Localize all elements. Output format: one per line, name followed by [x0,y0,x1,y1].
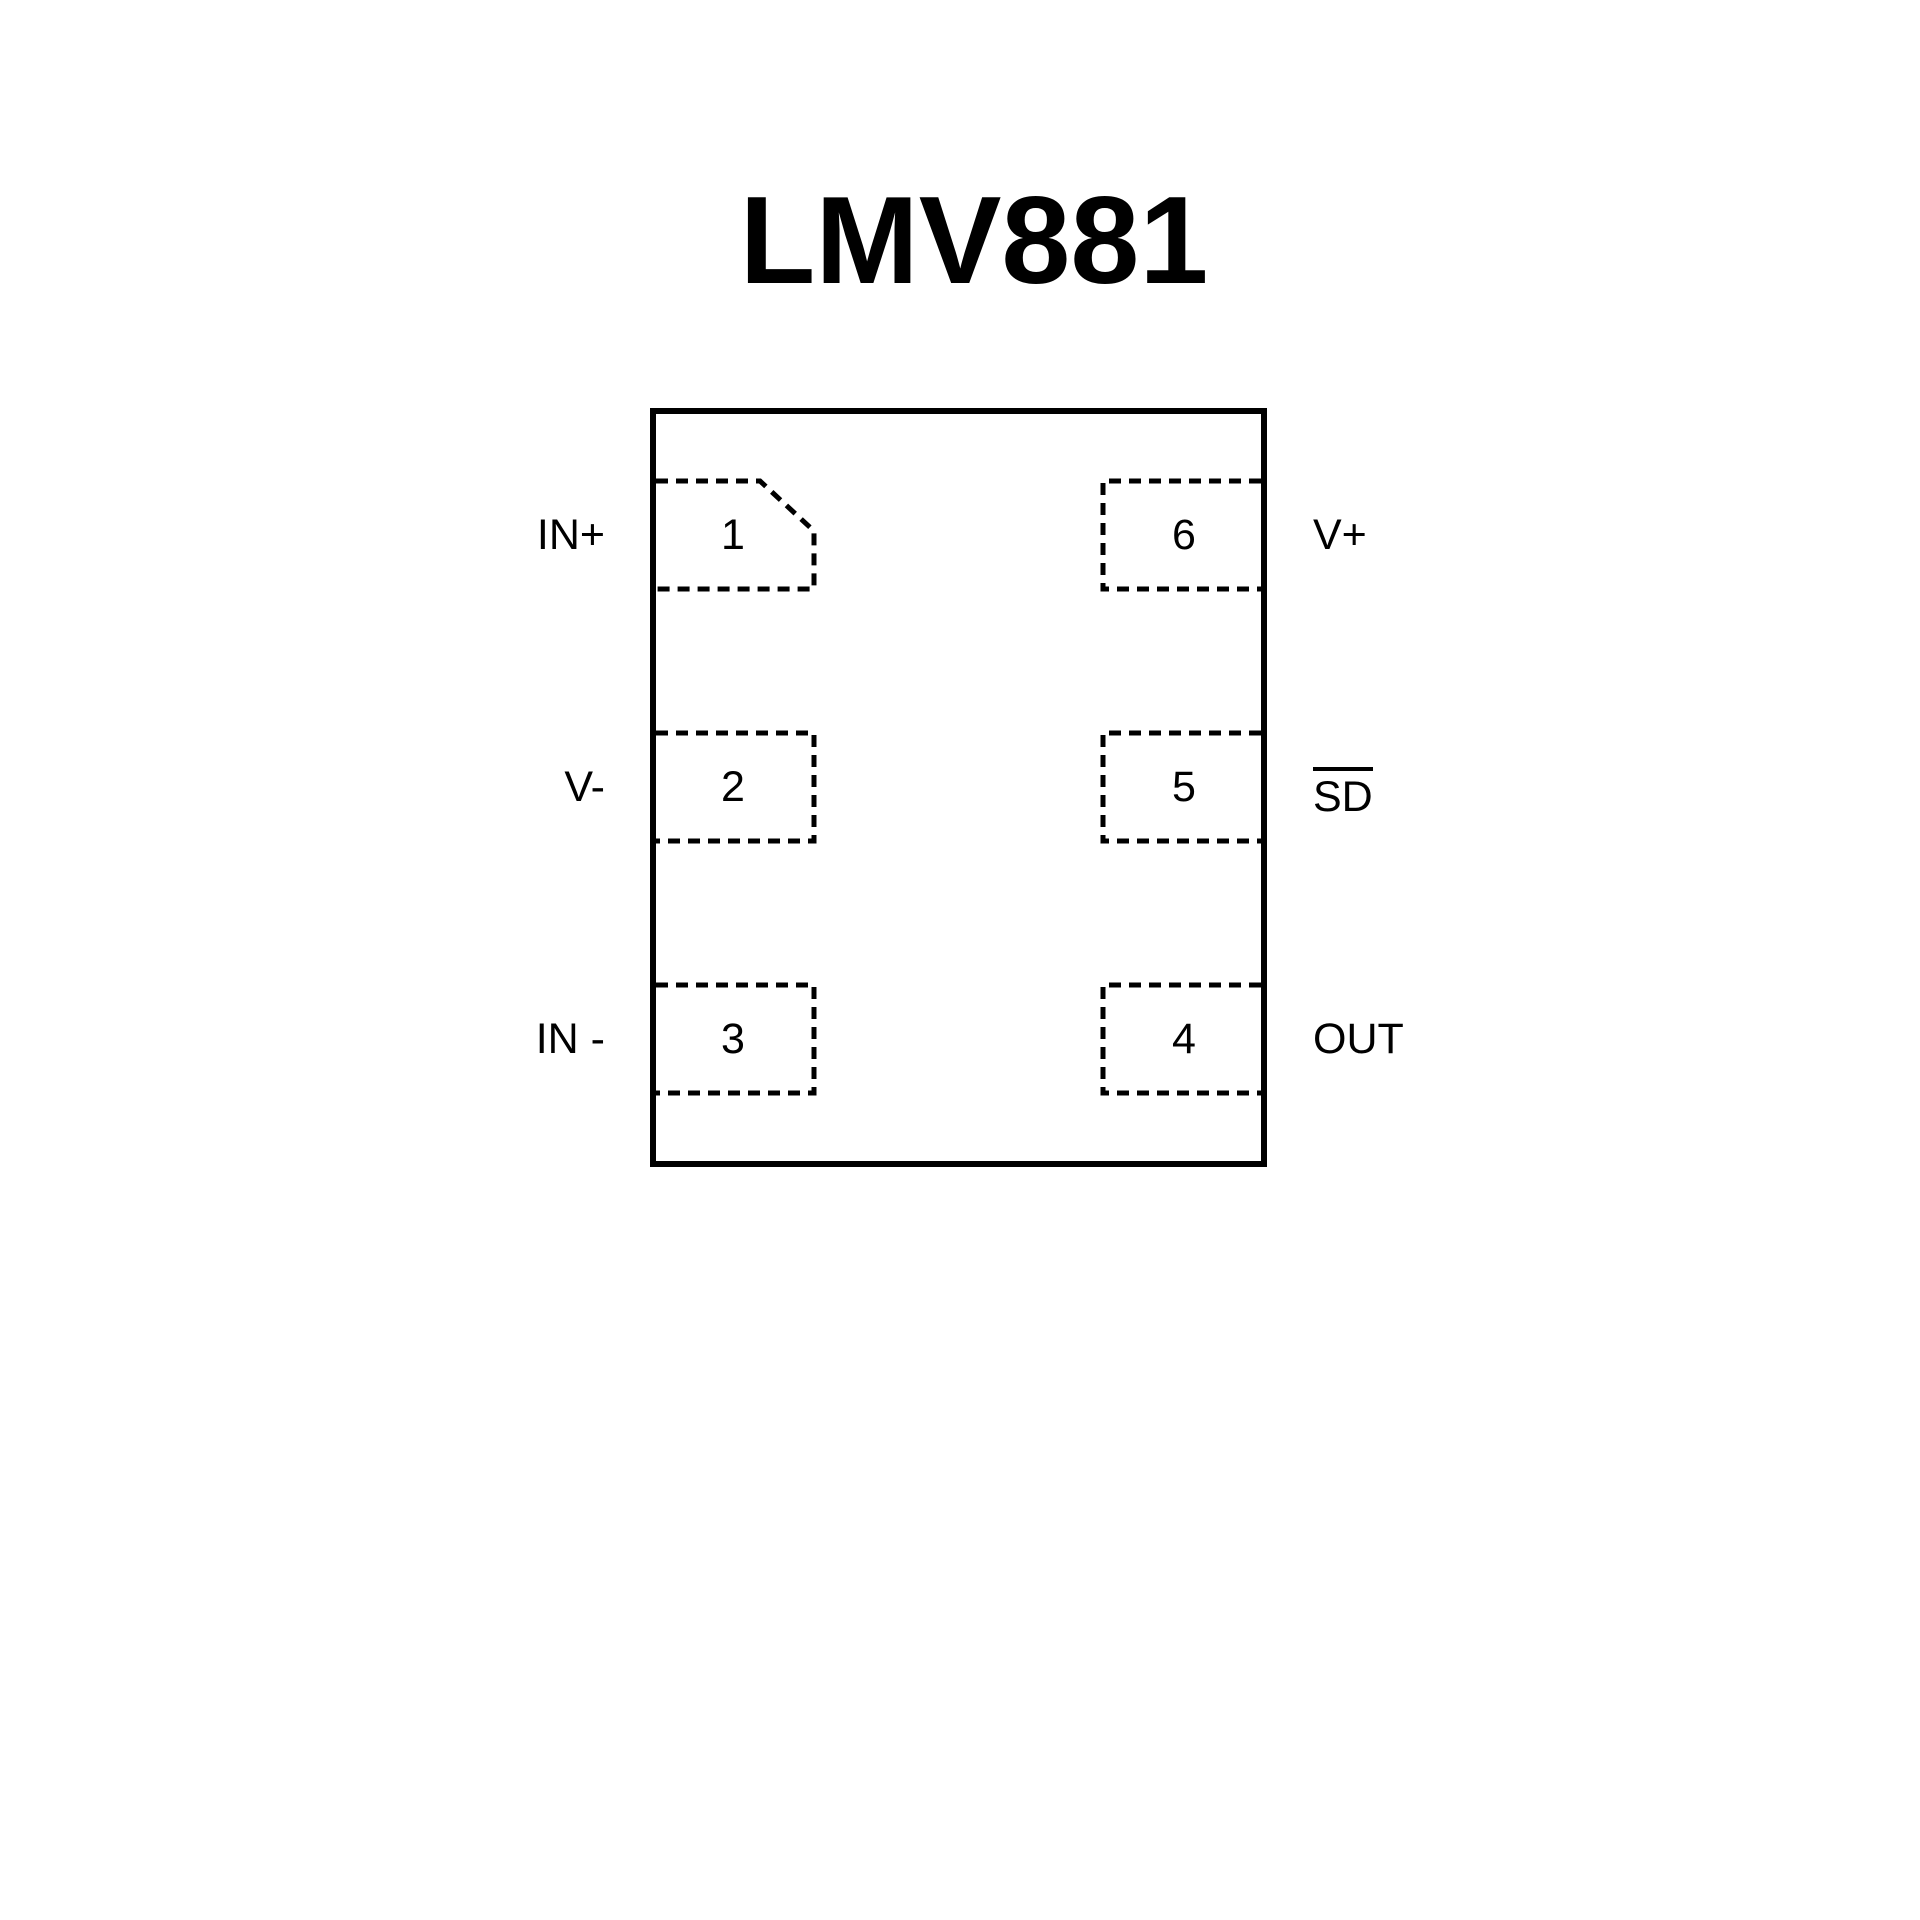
pin-2-number: 2 [650,731,816,843]
pin-6-label: V+ [1313,512,1367,558]
pin-6-number: 6 [1101,479,1267,591]
pin-4-number: 4 [1101,983,1267,1095]
pin-2-label: V- [385,764,605,810]
pin-5-label-wrap: SD [1313,767,1373,822]
pin-5-number: 5 [1101,731,1267,843]
page: LMV881 1 2 3 4 5 6 IN+ V- IN - V+ SD OUT [0,0,1920,1920]
pin-1-number: 1 [650,479,816,591]
pin-4-label: OUT [1313,1016,1404,1062]
pin-3-label: IN - [385,1016,605,1062]
pin-3-number: 3 [650,983,816,1095]
pin-5-label: SD [1313,767,1373,819]
pinout-diagram [0,0,1920,1920]
pin-1-label: IN+ [385,512,605,558]
